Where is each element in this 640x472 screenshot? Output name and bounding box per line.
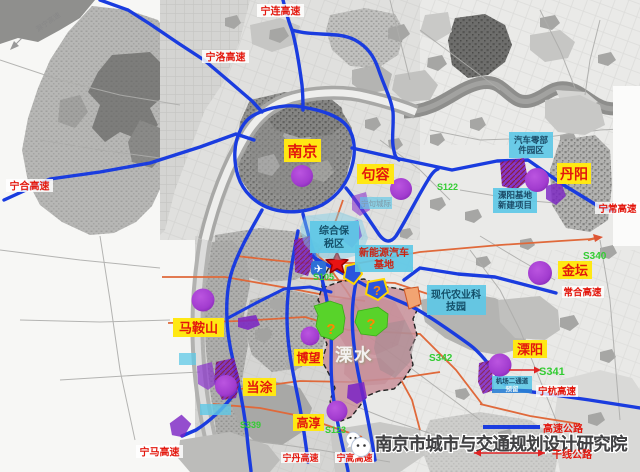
svg-text:宁常高速: 宁常高速 bbox=[598, 203, 637, 215]
svg-text:溧水: 溧水 bbox=[335, 345, 373, 365]
svg-text:宁杭高速: 宁杭高速 bbox=[538, 386, 577, 398]
svg-text:博望: 博望 bbox=[296, 350, 320, 365]
svg-text:南京: 南京 bbox=[287, 143, 317, 161]
svg-text:S122: S122 bbox=[437, 182, 458, 192]
svg-text:常合高速: 常合高速 bbox=[563, 287, 602, 299]
svg-text:新能源汽车: 新能源汽车 bbox=[359, 246, 409, 259]
svg-text:综合保: 综合保 bbox=[319, 224, 350, 237]
svg-text:S105: S105 bbox=[313, 272, 334, 282]
svg-text:技园: 技园 bbox=[446, 300, 466, 313]
svg-text:金坛: 金坛 bbox=[561, 263, 588, 278]
svg-text:高速公路: 高速公路 bbox=[543, 422, 584, 435]
svg-text:马鞍山: 马鞍山 bbox=[179, 321, 218, 336]
svg-text:宁句城际: 宁句城际 bbox=[361, 198, 391, 208]
svg-text:机场二通道: 机场二通道 bbox=[496, 376, 529, 385]
svg-text:?: ? bbox=[326, 321, 335, 338]
svg-text:溧阳基地: 溧阳基地 bbox=[498, 190, 533, 200]
svg-text:高淳: 高淳 bbox=[296, 415, 320, 430]
svg-text:?: ? bbox=[366, 316, 375, 333]
svg-text:S341: S341 bbox=[539, 366, 565, 378]
svg-text:S342: S342 bbox=[429, 353, 453, 364]
svg-text:溧阳: 溧阳 bbox=[517, 342, 543, 357]
svg-text:S340: S340 bbox=[583, 251, 607, 262]
svg-text:干线公路: 干线公路 bbox=[552, 448, 593, 461]
svg-text:基地: 基地 bbox=[373, 258, 394, 271]
svg-text:宁连高速: 宁连高速 bbox=[261, 5, 301, 18]
svg-text:汽车零部: 汽车零部 bbox=[514, 135, 549, 145]
svg-text:S123: S123 bbox=[325, 425, 346, 435]
svg-text:现代农业科: 现代农业科 bbox=[431, 288, 481, 301]
svg-text:预留: 预留 bbox=[506, 384, 520, 393]
svg-text:S339: S339 bbox=[240, 420, 261, 430]
svg-text:宁马高速: 宁马高速 bbox=[140, 446, 180, 459]
svg-text:丹阳: 丹阳 bbox=[560, 166, 588, 182]
svg-text:句容: 句容 bbox=[362, 167, 390, 183]
svg-text:新建项目: 新建项目 bbox=[498, 200, 532, 210]
svg-text:?: ? bbox=[373, 283, 381, 298]
svg-text:宁合高速: 宁合高速 bbox=[10, 180, 50, 193]
svg-text:税区: 税区 bbox=[324, 237, 344, 250]
svg-text:件园区: 件园区 bbox=[518, 145, 544, 155]
svg-text:宁洛高速: 宁洛高速 bbox=[206, 51, 246, 64]
svg-text:当涂: 当涂 bbox=[246, 380, 273, 395]
svg-text:宁丹高速: 宁丹高速 bbox=[282, 452, 318, 463]
